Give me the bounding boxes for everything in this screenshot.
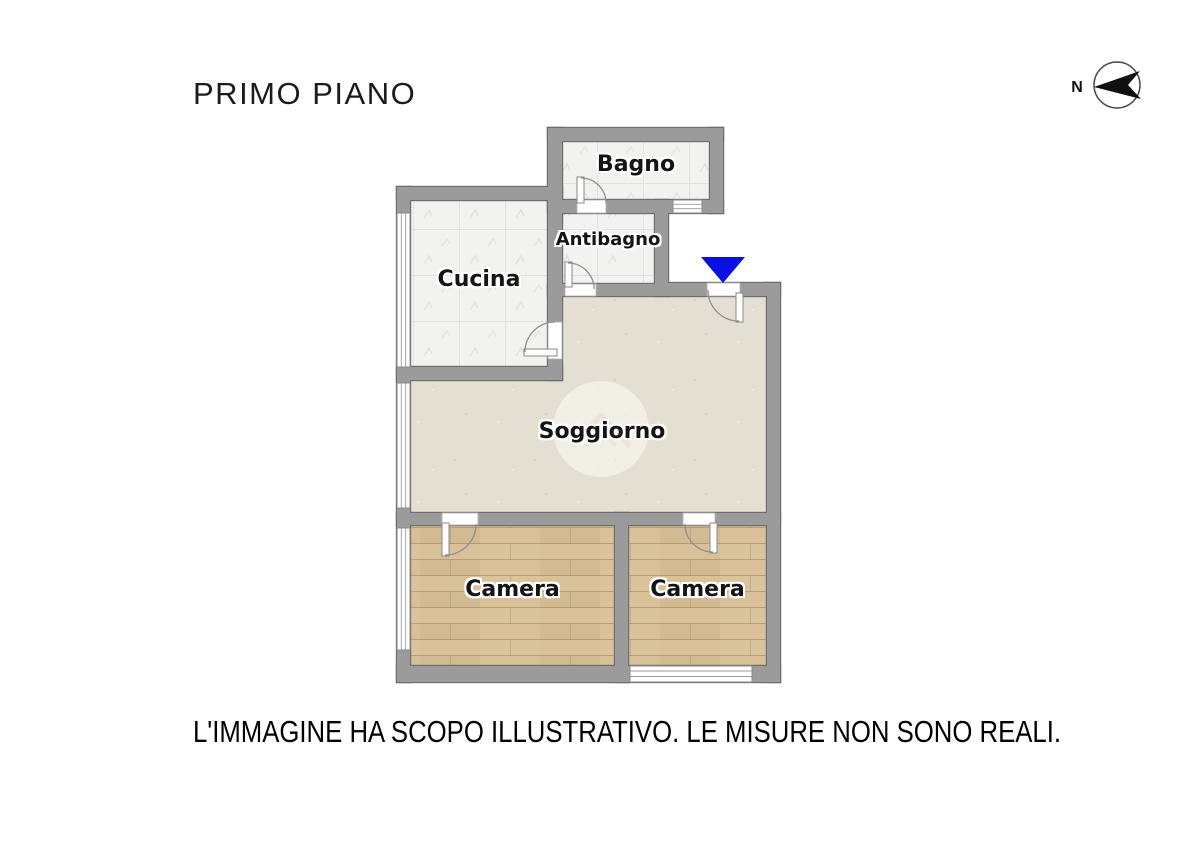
entrance-door-opening [707,283,740,296]
window-soggiorno-left [397,383,410,508]
disclaimer-text: L'IMMAGINE HA SCOPO ILLUSTRATIVO. LE MIS… [193,714,1061,750]
room-label-bagno: Bagno [562,152,710,177]
window-camera-bottom [630,666,752,682]
north-arrow-icon [1094,71,1141,99]
compass-north-label: N [1071,79,1083,96]
window-camera-left [397,528,410,650]
bagno-door-leaf [577,177,584,203]
entrance-door-leaf [736,293,743,322]
room-label-camera-right: Camera [628,577,767,602]
room-label-soggiorno: Soggiorno [502,419,702,444]
camera-left-door-leaf [442,523,449,556]
antibagno-door-leaf [565,262,572,287]
room-label-camera-left: Camera [410,577,615,602]
floorplan-page: PRIMO PIANO [0,0,1200,850]
room-label-cucina: Cucina [410,267,548,292]
compass: N [1071,62,1141,108]
room-label-antibagno: Antibagno [548,229,668,250]
window-cucina-left [397,213,410,367]
camera-right-door-leaf [710,523,717,553]
entrance-marker-triangle [701,257,745,283]
cucina-door-leaf [524,349,557,356]
window-bagno-bottom [673,200,702,213]
